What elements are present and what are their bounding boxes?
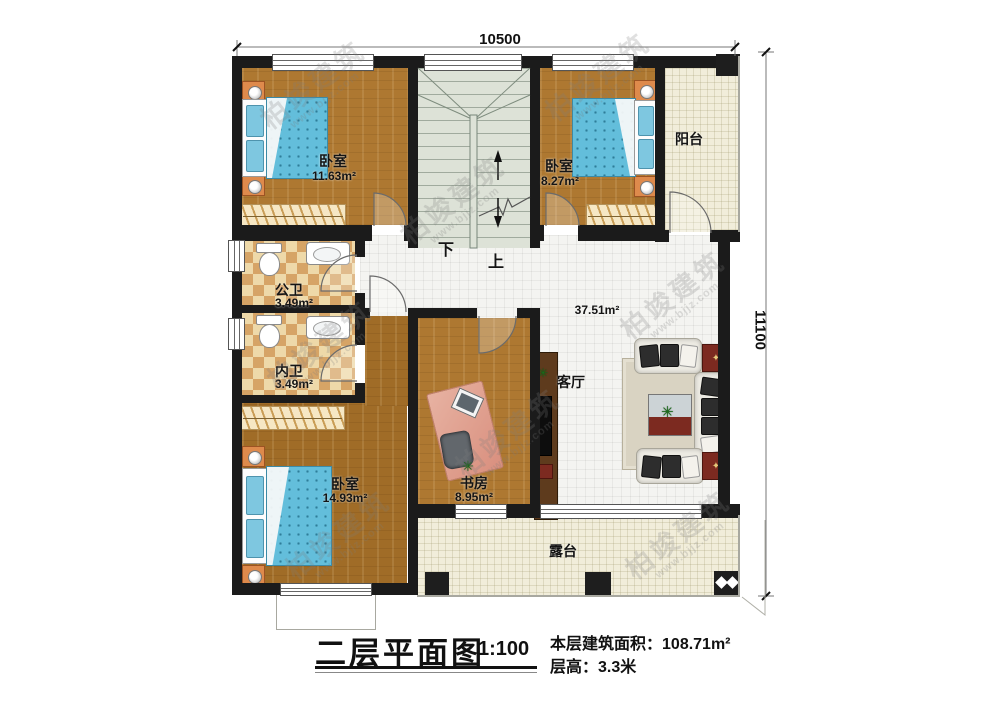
sink xyxy=(306,316,350,339)
floor-area-value: 108.71m² xyxy=(662,636,731,653)
floor-area-text: 本层建筑面积：108.71m² xyxy=(550,630,731,654)
bed xyxy=(266,466,332,566)
coffee-table: ✳ xyxy=(648,394,692,436)
wall xyxy=(370,583,418,595)
wall xyxy=(355,383,365,403)
room-area-bedroom-top-left: 11.63m² xyxy=(312,169,356,183)
wall xyxy=(408,308,418,595)
wall xyxy=(578,225,665,241)
bed-headboard xyxy=(242,468,268,564)
room-label-bedroom-top-left: 卧室 xyxy=(319,151,347,171)
wall xyxy=(700,504,740,518)
window xyxy=(228,240,245,272)
pillar xyxy=(585,572,611,596)
wall xyxy=(517,308,540,318)
wall xyxy=(410,504,455,518)
wardrobe xyxy=(240,204,346,227)
wardrobe xyxy=(586,204,657,227)
wall xyxy=(655,56,665,232)
nightstand xyxy=(242,175,265,196)
room-area-bath-inner: 3.49m² xyxy=(275,377,313,391)
sofa xyxy=(634,338,702,374)
wall xyxy=(355,235,365,257)
sink xyxy=(306,242,350,265)
room-area-bedroom-bottom-left: 14.93m² xyxy=(323,491,368,505)
plan-scale: 1:100 xyxy=(478,638,529,661)
nightstand xyxy=(634,80,657,101)
room-area-bedroom-top-right: 8.27m² xyxy=(541,174,579,188)
wall xyxy=(242,395,355,403)
pillar xyxy=(716,54,740,76)
balcony-edge xyxy=(738,56,740,232)
window xyxy=(552,54,634,71)
toilet xyxy=(259,252,280,276)
wall xyxy=(232,225,372,241)
wall xyxy=(355,293,365,345)
nightstand xyxy=(634,176,657,197)
floor-height-value: 3.3米 xyxy=(598,659,636,676)
tv xyxy=(539,396,552,456)
window xyxy=(280,583,372,596)
wall xyxy=(530,56,540,248)
window-sliding-door xyxy=(540,504,702,519)
terrace-edge xyxy=(738,515,740,597)
room-label-balcony: 阳台 xyxy=(675,129,703,149)
bed-headboard xyxy=(242,99,268,177)
stairs-down-label: 下 xyxy=(438,236,454,260)
terrace-edge xyxy=(417,595,740,597)
dimension-right-label: 11100 xyxy=(752,310,769,350)
room-area-living: 37.51m² xyxy=(575,303,620,317)
floor-height-text: 层高：3.3米 xyxy=(550,653,636,677)
window xyxy=(272,54,374,71)
stairs-up-label: 上 xyxy=(488,248,504,272)
wall xyxy=(718,230,730,518)
room-label-living: 客厅 xyxy=(557,372,585,392)
room-area-study: 8.95m² xyxy=(455,490,493,504)
title-underline-thin xyxy=(315,672,537,673)
terrace-floor xyxy=(417,515,740,597)
title-underline xyxy=(315,666,537,669)
wall xyxy=(408,56,418,248)
floor-height-label: 层高： xyxy=(550,659,598,676)
window xyxy=(455,504,507,519)
window xyxy=(424,54,522,71)
bed xyxy=(572,98,636,177)
pillar-diamond xyxy=(714,571,740,596)
floor-area-label: 本层建筑面积： xyxy=(550,636,662,653)
room-label-bedroom-top-right: 卧室 xyxy=(545,156,573,176)
nightstand xyxy=(242,446,265,467)
bedroom-vestibule-floor xyxy=(365,316,408,406)
pillar xyxy=(425,572,449,596)
decor-box xyxy=(538,464,553,479)
wall xyxy=(655,230,669,242)
window xyxy=(228,318,245,350)
wall xyxy=(530,225,544,241)
room-area-bath-public: 3.49m² xyxy=(275,296,313,310)
wall xyxy=(505,504,540,518)
toilet xyxy=(259,324,280,348)
wall xyxy=(408,308,477,318)
terrace-guide xyxy=(742,520,765,615)
room-label-terrace: 露台 xyxy=(549,541,577,561)
wardrobe xyxy=(240,406,345,430)
wall xyxy=(363,308,370,318)
balcony-floor xyxy=(665,68,738,232)
stairwell-floor xyxy=(418,68,530,248)
wall xyxy=(530,318,540,508)
sofa xyxy=(636,448,704,484)
floor-plan-canvas: ✳ ✳ ✳ ✦ ✦ xyxy=(0,0,1000,706)
wall xyxy=(404,225,418,241)
dimension-top-label: 10500 xyxy=(479,31,521,48)
wall xyxy=(232,583,280,595)
